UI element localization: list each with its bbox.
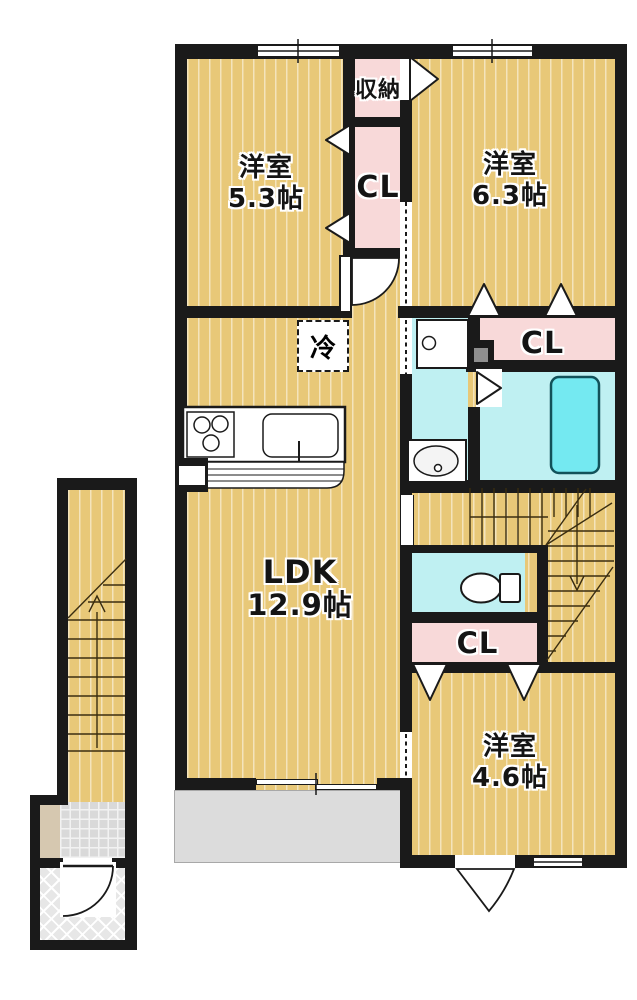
- label-bedroom-46: 洋室 4.6帖: [430, 732, 590, 794]
- doorway-stair-hall: [400, 495, 414, 545]
- wall: [57, 478, 68, 805]
- balcony-area: [174, 790, 404, 863]
- toilet-area: [412, 553, 525, 612]
- label-bedroom-53: 洋室 5.3帖: [186, 153, 346, 215]
- label-ldk: LDK 12.9帖: [205, 556, 395, 622]
- shoe-cabinet: [40, 805, 60, 858]
- floor-plan: 冷: [0, 0, 637, 1000]
- wall: [400, 374, 412, 495]
- label-closet-hall: CL: [440, 626, 515, 660]
- entrance-door-swing: [60, 862, 116, 917]
- room-name: 洋室: [430, 732, 590, 763]
- wall: [537, 553, 548, 673]
- wall: [398, 306, 627, 318]
- wall: [400, 778, 412, 868]
- wall: [468, 407, 480, 488]
- sliding-door-balcony: [256, 779, 318, 785]
- room-name: 洋室: [430, 150, 590, 181]
- wall: [30, 795, 40, 950]
- room-size: 6.3帖: [430, 181, 590, 212]
- wall: [400, 480, 627, 493]
- room-size: 12.9帖: [205, 589, 395, 622]
- bathroom-area: [480, 372, 615, 480]
- staircase-annex-floor: [68, 490, 125, 802]
- wall: [377, 778, 412, 790]
- wall: [355, 117, 400, 127]
- label-closet-upper: CL: [348, 170, 408, 205]
- room-size: 5.3帖: [186, 184, 346, 215]
- entrance-tile-area: [60, 802, 125, 858]
- wall: [30, 940, 137, 950]
- label-storage: 収納: [341, 72, 415, 104]
- refrigerator-label: 冷: [310, 328, 336, 365]
- label-closet-bath: CL: [505, 326, 580, 361]
- window: [533, 857, 583, 867]
- wall: [175, 778, 256, 790]
- wall: [400, 612, 537, 623]
- wall: [175, 306, 352, 318]
- doorway-bedroom-46: [400, 732, 412, 778]
- wall: [400, 545, 412, 732]
- washroom-area: [412, 318, 468, 480]
- doorway-bedroom-63: [400, 202, 412, 306]
- room-name: LDK: [205, 556, 395, 589]
- wall: [30, 858, 63, 868]
- window: [257, 45, 340, 57]
- window: [452, 45, 533, 57]
- closet-door-track: [474, 348, 488, 362]
- doorway-exterior: [455, 855, 515, 868]
- room-size: 4.6帖: [430, 763, 590, 794]
- sliding-door-balcony: [315, 784, 377, 790]
- wall: [175, 44, 627, 59]
- wall: [400, 662, 627, 673]
- wall: [125, 478, 137, 950]
- refrigerator-space: 冷: [297, 320, 349, 372]
- room-name: 洋室: [186, 153, 346, 184]
- wall: [400, 545, 548, 553]
- exterior-door-arc: [457, 869, 514, 911]
- doorway-washroom: [400, 318, 412, 374]
- label-bedroom-63: 洋室 6.3帖: [430, 150, 590, 212]
- wall: [615, 44, 627, 868]
